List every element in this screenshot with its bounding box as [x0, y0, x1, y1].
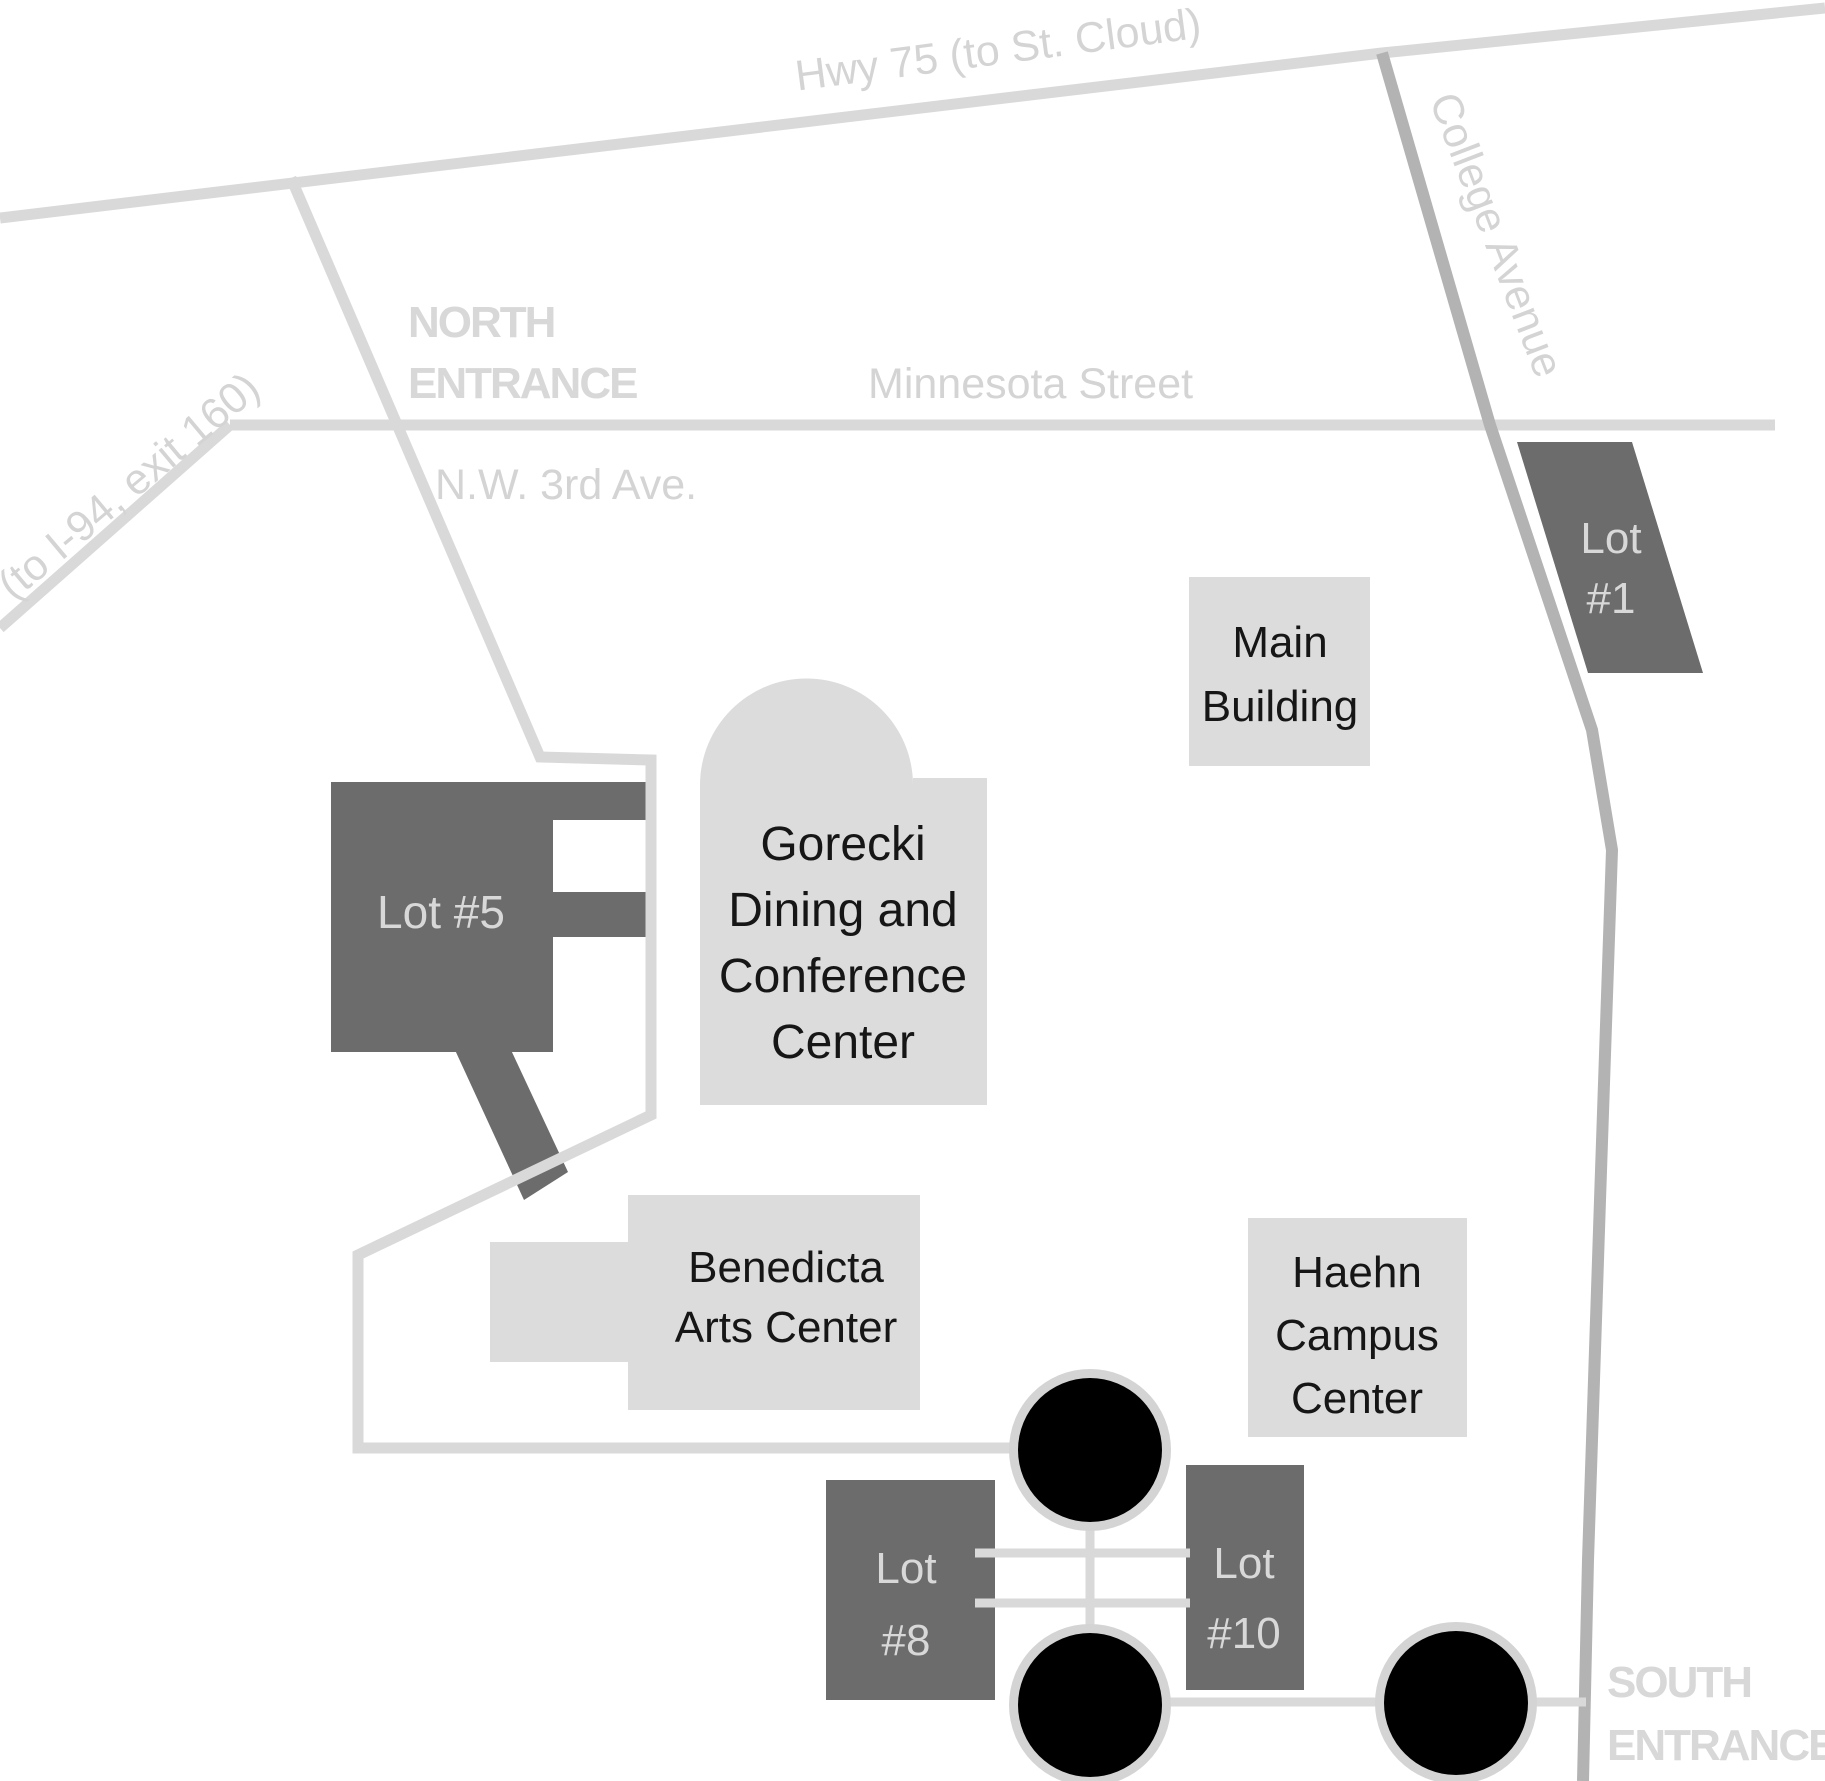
road-label-to-i94: (to I-94, exit 160)	[0, 363, 269, 609]
roundabout-east	[1384, 1631, 1528, 1775]
north-entrance-label-line2: ENTRANCE	[408, 359, 637, 408]
parking-lots-layer	[331, 442, 1703, 1700]
lot-labels-layer: Lot #1 Lot #5 Lot #8 Lot #10	[377, 514, 1642, 1665]
road-labels-layer: Hwy 75 (to St. Cloud) Minnesota Street N…	[0, 0, 1572, 609]
haehn-label-line2: Campus	[1275, 1311, 1439, 1360]
lot-8-label-line1: Lot	[875, 1544, 936, 1593]
roundabout-south	[1018, 1633, 1162, 1777]
lot-1-label-line2: #1	[1587, 574, 1636, 623]
north-entrance-label-line1: NORTH	[408, 298, 554, 347]
south-entrance-label-line1: SOUTH	[1607, 1658, 1751, 1707]
lot-8-label-line2: #8	[882, 1616, 931, 1665]
lot-10-label-line2: #10	[1207, 1609, 1280, 1658]
roundabout-north	[1018, 1378, 1162, 1522]
road-label-minnesota-street: Minnesota Street	[868, 360, 1193, 408]
benedicta-arts-center-west-wing-shape	[490, 1242, 630, 1362]
gorecki-label-line4: Center	[771, 1016, 915, 1069]
main-building-label-line2: Building	[1202, 682, 1359, 731]
gorecki-label-line3: Conference	[719, 950, 967, 1003]
benedicta-label-line1: Benedicta	[688, 1243, 884, 1292]
lot-10-label-line1: Lot	[1213, 1539, 1274, 1588]
benedicta-label-line2: Arts Center	[675, 1303, 898, 1352]
main-building-shape	[1189, 577, 1370, 766]
main-building-label-line1: Main	[1232, 618, 1327, 667]
road-label-college-avenue: College Avenue	[1420, 86, 1572, 384]
gorecki-label-line2: Dining and	[728, 884, 958, 937]
haehn-label-line3: Center	[1291, 1374, 1423, 1423]
lot-5-label: Lot #5	[377, 886, 505, 938]
south-entrance-label-line2: ENTRANCE	[1607, 1721, 1825, 1770]
road-college-avenue	[1382, 53, 1612, 1781]
gorecki-label-line1: Gorecki	[760, 818, 925, 871]
campus-map: Hwy 75 (to St. Cloud) Minnesota Street N…	[0, 0, 1825, 1781]
road-label-nw-3rd-ave: N.W. 3rd Ave.	[435, 461, 697, 509]
lot-1-label-line1: Lot	[1580, 514, 1641, 563]
haehn-label-line1: Haehn	[1292, 1248, 1422, 1297]
